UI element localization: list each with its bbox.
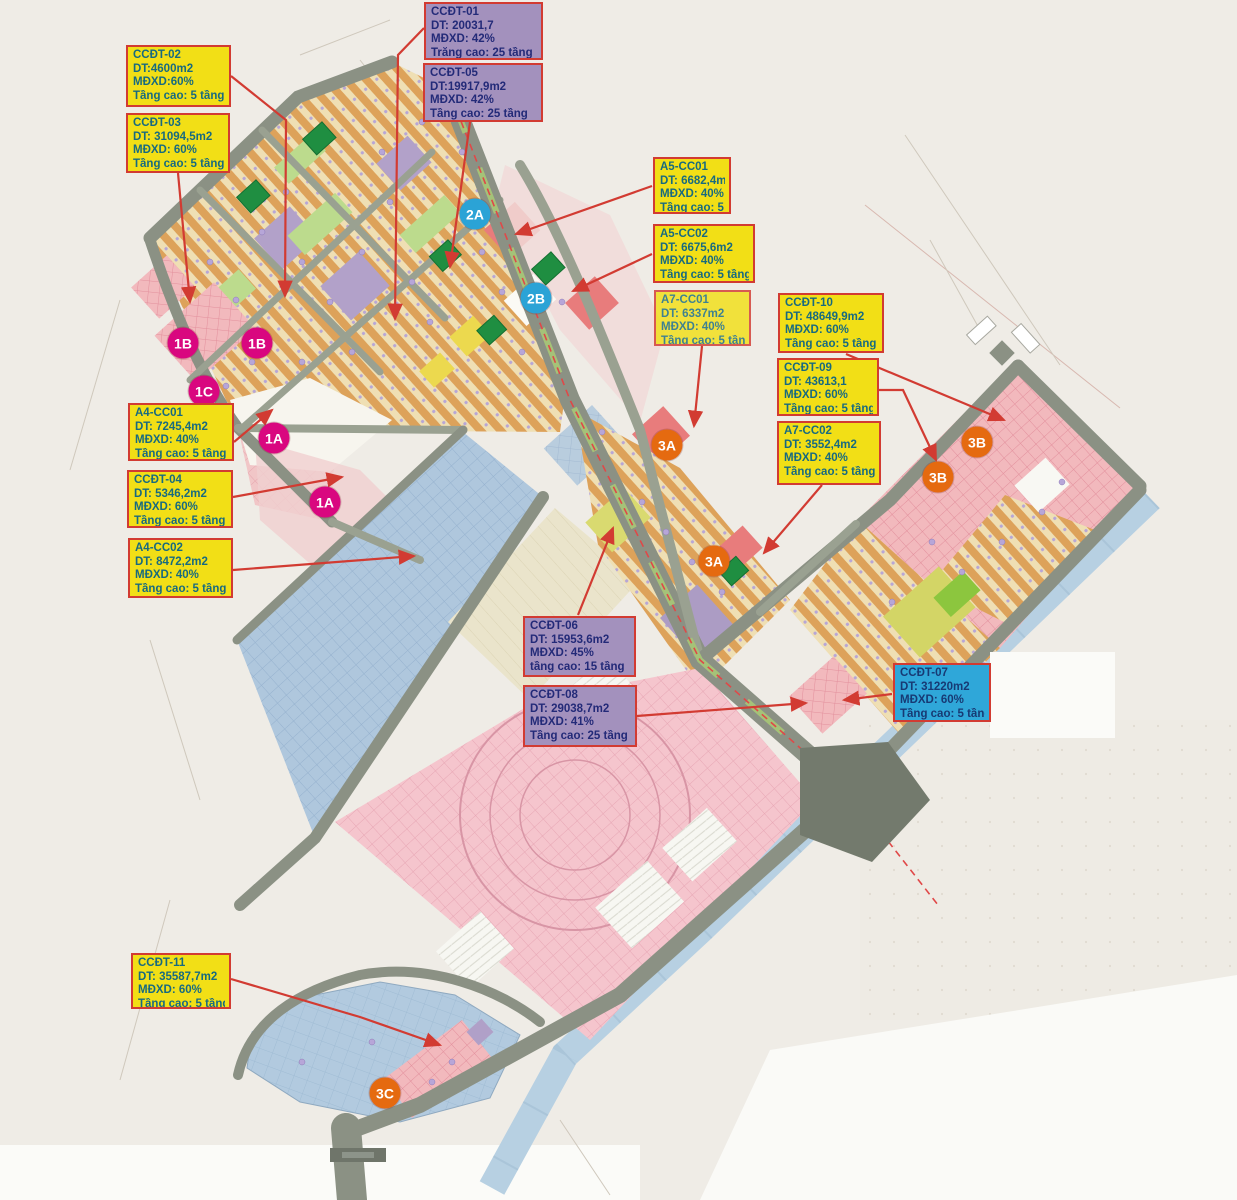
white-panel <box>990 652 1115 738</box>
label-line-code: CCĐT-05 <box>430 67 537 81</box>
label-line-tang: tầng cao: 15 tầng <box>530 661 630 675</box>
label-line-dt: DT: 43613,1 <box>784 376 873 390</box>
label-line-code: CCĐT-11 <box>138 957 225 971</box>
region-label-CCDT-03: CCĐT-03DT: 31094,5m2MĐXD: 60%Tầng cao: 5… <box>126 113 230 173</box>
label-line-tang: Tầng cao: 5 tầng <box>133 158 224 172</box>
master-plan-screenshot: CCĐT-02DT:4600m2MĐXD:60%Tầng cao: 5 tầng… <box>0 0 1237 1200</box>
label-line-code: CCĐT-10 <box>785 297 878 311</box>
label-line-dt: DT: 15953,6m2 <box>530 634 630 648</box>
label-line-code: A4-CC02 <box>135 542 227 556</box>
label-line-dt: DT:19917,9m2 <box>430 81 537 95</box>
label-line-tang: Tầng cao: 5 tầng <box>134 515 227 529</box>
label-line-mdxd: MĐXD: 42% <box>430 94 537 108</box>
label-line-tang: Tầng cao: 5 tầng <box>660 269 749 283</box>
label-line-mdxd: MĐXD: 41% <box>530 716 631 730</box>
label-line-dt: DT: 8472,2m2 <box>135 556 227 570</box>
region-label-CCDT-05: CCĐT-05DT:19917,9m2MĐXD: 42%Tầng cao: 25… <box>423 63 543 122</box>
label-line-mdxd: MĐXD: 60% <box>785 324 878 338</box>
label-line-mdxd: MĐXD: 45% <box>530 647 630 661</box>
zone-badge-2a: 2A <box>460 199 491 230</box>
label-line-dt: DT: 6337m2 <box>661 308 745 322</box>
label-line-dt: DT: 31094,5m2 <box>133 131 224 145</box>
label-line-code: A4-CC01 <box>135 407 228 421</box>
label-line-mdxd: MĐXD: 40% <box>784 452 875 466</box>
label-line-mdxd: MĐXD: 60% <box>784 389 873 403</box>
label-line-dt: DT: 5346,2m2 <box>134 488 227 502</box>
label-line-dt: DT: 35587,7m2 <box>138 971 225 985</box>
region-label-CCDT-01: CCĐT-01DT: 20031,7MĐXD: 42%Trằng cao: 25… <box>424 2 543 60</box>
label-line-tang: Tầng cao: 5 tầng <box>135 583 227 597</box>
label-line-code: CCĐT-08 <box>530 689 631 703</box>
label-line-code: CCĐT-01 <box>431 6 537 20</box>
label-line-mdxd: MĐXD: 40% <box>660 188 725 202</box>
label-line-tang: Tầng cao: 5 tầng <box>784 466 875 480</box>
label-line-tang: Tầng cao: 5 tầng <box>785 338 878 352</box>
label-line-tang: Tầng cao: 5 tầng <box>661 335 745 347</box>
label-line-code: CCĐT-06 <box>530 620 630 634</box>
label-line-mdxd: MĐXD: 60% <box>138 984 225 998</box>
label-line-tang: Tầng cao: 25 tầng <box>430 108 537 122</box>
region-label-A4-CC01: A4-CC01DT: 7245,4m2MĐXD: 40%Tầng cao: 5 … <box>128 403 234 461</box>
zone-badge-1a: 1A <box>310 487 341 518</box>
region-label-A7-CC01: A7-CC01DT: 6337m2MĐXD: 40%Tầng cao: 5 tầ… <box>654 290 751 346</box>
label-line-dt: DT: 48649,9m2 <box>785 311 878 325</box>
label-line-mdxd: MĐXD: 42% <box>431 33 537 47</box>
label-line-code: CCĐT-07 <box>900 667 985 681</box>
region-label-A4-CC02: A4-CC02DT: 8472,2m2MĐXD: 40%Tầng cao: 5 … <box>128 538 233 598</box>
label-line-tang: Tầng cao: 5 tầng <box>138 998 225 1010</box>
zone-badge-3c: 3C <box>370 1078 401 1109</box>
label-line-dt: DT: 31220m2 <box>900 681 985 695</box>
zone-badge-3a: 3A <box>652 430 683 461</box>
label-line-code: CCĐT-03 <box>133 117 224 131</box>
label-line-dt: DT: 6682,4m2 <box>660 175 725 189</box>
label-line-dt: DT: 6675,6m2 <box>660 242 749 256</box>
region-label-CCDT-02: CCĐT-02DT:4600m2MĐXD:60%Tầng cao: 5 tầng <box>126 45 231 107</box>
label-line-tang: Tầng cao: 5 tầng <box>784 403 873 417</box>
zone-badge-1b: 1B <box>168 328 199 359</box>
zone-badge-1b: 1B <box>242 328 273 359</box>
label-line-code: A7-CC02 <box>784 425 875 439</box>
label-line-tang: Tầng cao: 5 tầng <box>660 202 725 215</box>
label-line-tang: Tầng cao: 25 tầng <box>530 730 631 744</box>
label-line-mdxd: MĐXD: 60% <box>900 694 985 708</box>
label-line-tang: Tầng cao: 5 tầng <box>900 708 985 722</box>
label-line-mdxd: MĐXD: 40% <box>135 569 227 583</box>
label-line-dt: DT: 20031,7 <box>431 20 537 34</box>
zone-badge-2b: 2B <box>521 283 552 314</box>
region-label-CCDT-04: CCĐT-04DT: 5346,2m2MĐXD: 60%Tầng cao: 5 … <box>127 470 233 528</box>
label-line-dt: DT: 3552,4m2 <box>784 439 875 453</box>
label-line-code: A5-CC01 <box>660 161 725 175</box>
zone-badge-3b: 3B <box>923 462 954 493</box>
label-line-mdxd: MĐXD: 40% <box>135 434 228 448</box>
master-plan-map <box>0 0 1237 1200</box>
region-label-CCDT-06: CCĐT-06DT: 15953,6m2MĐXD: 45%tầng cao: 1… <box>523 616 636 677</box>
region-label-CCDT-08: CCĐT-08DT: 29038,7m2MĐXD: 41%Tầng cao: 2… <box>523 685 637 747</box>
label-line-mdxd: MĐXD: 60% <box>133 144 224 158</box>
label-line-mdxd: MĐXD: 40% <box>660 255 749 269</box>
label-line-mdxd: MĐXD:60% <box>133 76 225 90</box>
label-line-mdxd: MĐXD: 40% <box>661 321 745 335</box>
region-label-A5-CC01: A5-CC01DT: 6682,4m2MĐXD: 40%Tầng cao: 5 … <box>653 157 731 214</box>
label-line-dt: DT: 7245,4m2 <box>135 421 228 435</box>
label-line-tang: Tầng cao: 5 tầng <box>135 448 228 462</box>
region-label-CCDT-10: CCĐT-10DT: 48649,9m2MĐXD: 60%Tầng cao: 5… <box>778 293 884 353</box>
label-line-dt: DT: 29038,7m2 <box>530 703 631 717</box>
zone-badge-3b: 3B <box>962 427 993 458</box>
region-label-CCDT-11: CCĐT-11DT: 35587,7m2MĐXD: 60%Tầng cao: 5… <box>131 953 231 1009</box>
label-line-mdxd: MĐXD: 60% <box>134 501 227 515</box>
label-line-code: CCĐT-02 <box>133 49 225 63</box>
region-label-CCDT-07: CCĐT-07DT: 31220m2MĐXD: 60%Tầng cao: 5 t… <box>893 663 991 722</box>
label-line-code: A7-CC01 <box>661 294 745 308</box>
zone-badge-1a: 1A <box>259 423 290 454</box>
label-line-dt: DT:4600m2 <box>133 63 225 77</box>
zone-badge-3a: 3A <box>699 546 730 577</box>
region-label-A5-CC02: A5-CC02DT: 6675,6m2MĐXD: 40%Tầng cao: 5 … <box>653 224 755 283</box>
region-label-A7-CC02: A7-CC02DT: 3552,4m2MĐXD: 40%Tầng cao: 5 … <box>777 421 881 485</box>
region-label-CCDT-09: CCĐT-09DT: 43613,1MĐXD: 60%Tầng cao: 5 t… <box>777 358 879 416</box>
zone-badge-1c: 1C <box>189 376 220 407</box>
label-line-tang: Tầng cao: 5 tầng <box>133 90 225 104</box>
label-line-code: CCĐT-09 <box>784 362 873 376</box>
label-line-code: A5-CC02 <box>660 228 749 242</box>
label-line-code: CCĐT-04 <box>134 474 227 488</box>
label-line-tang: Trằng cao: 25 tầng <box>431 47 537 61</box>
